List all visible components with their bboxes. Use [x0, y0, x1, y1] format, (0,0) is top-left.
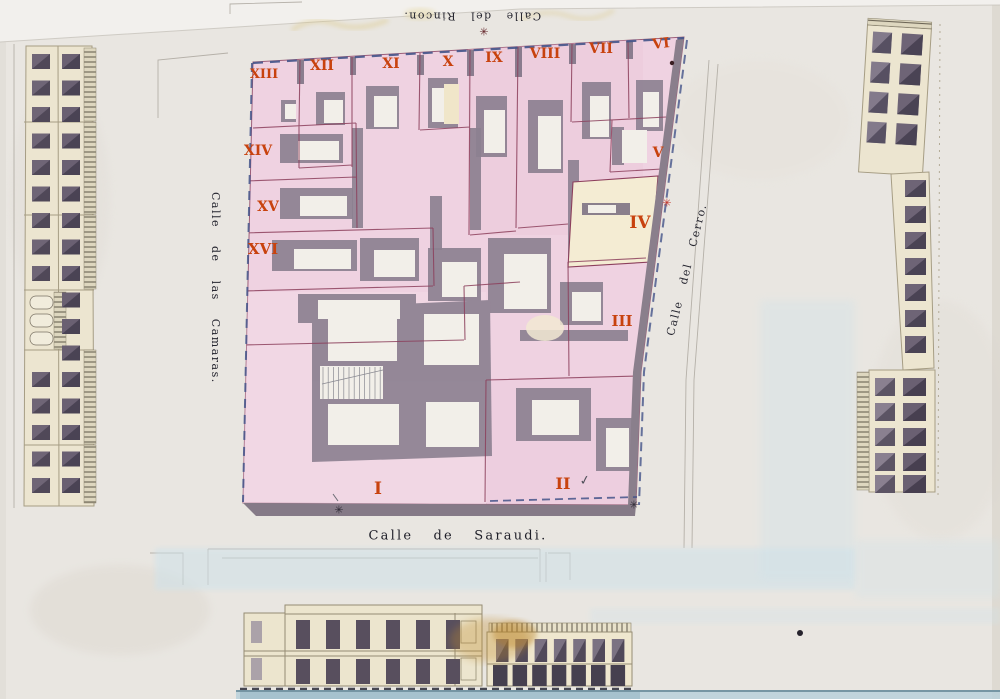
survey-star-bottom-right: ✳ [629, 500, 638, 511]
lot-iv-building-slot [588, 205, 616, 213]
left-elevation-arcade [30, 296, 53, 345]
border-band-bottom [243, 503, 636, 516]
lot-numeral-iv: IV [618, 214, 662, 233]
left-elevation [24, 46, 96, 506]
facade-door [571, 665, 586, 686]
street-wash-bottom [155, 548, 855, 590]
facade-a-parapet [285, 605, 482, 614]
city-block-plan [243, 37, 687, 516]
cream-court [444, 84, 459, 124]
lot-numeral-xvi: XVI [241, 241, 285, 258]
street-wash-facade-top [590, 608, 1000, 624]
cream-court [526, 315, 564, 341]
facade-window [386, 659, 400, 684]
lot-numeral-viii: VIII [523, 47, 567, 62]
lot-numeral-xii: XII [300, 59, 344, 74]
facade-door [591, 665, 606, 686]
lot-numeral-xiii: XIII [242, 68, 286, 82]
lot-numeral-v: V [636, 146, 680, 161]
street-label-camaras: Calle de las Camaras. [209, 192, 222, 384]
lot-numeral-iii: III [600, 313, 644, 330]
lot-numeral-i: I [356, 480, 400, 499]
facade-door [513, 665, 528, 686]
lot-numeral-xv: XV [246, 200, 290, 215]
facade-a-endbay-window [251, 658, 262, 680]
ink-dot [670, 61, 674, 65]
paper-blotch [670, 60, 850, 180]
bottom-water-dark [240, 692, 640, 699]
lot-numeral-ix: IX [472, 51, 516, 66]
street-label-rincon: Calle del Rincon. [403, 10, 541, 23]
ink-dot [797, 630, 803, 636]
survey-star-top: ✳ [479, 27, 488, 38]
arcade-arch [30, 314, 53, 327]
street-wash-right [760, 300, 855, 580]
lot-numeral-vii: VII [579, 42, 623, 57]
facade-door [493, 665, 508, 686]
facade-window [416, 620, 430, 649]
facade-door [552, 665, 567, 686]
facade-window [296, 659, 310, 684]
arcade-arch [30, 296, 53, 309]
lot-numeral-x: X [426, 55, 470, 70]
lot-numeral-xiv: XIV [236, 144, 280, 159]
photo-edge-left [0, 0, 6, 699]
right-elevation-upper [859, 18, 932, 176]
ink-stain [493, 620, 537, 648]
facade-window [296, 620, 310, 649]
facade-window [326, 620, 340, 649]
facade-window [356, 659, 370, 684]
facade-window [386, 620, 400, 649]
facade-window [326, 659, 340, 684]
lot-numeral-xi: XI [369, 57, 413, 72]
scanned-plan-sheet: Calle del Rincon. Calle de las Camaras. … [0, 0, 1000, 699]
plan-artwork [0, 0, 1000, 699]
survey-star-right: ✳ [662, 198, 671, 209]
arcade-arch [30, 332, 53, 345]
facade-door [532, 665, 547, 686]
facade-window [446, 659, 460, 684]
survey-star-bottom-left: ✳ [334, 505, 343, 516]
street-wash-corner [855, 540, 1000, 598]
facade-a-endbay-window [251, 621, 262, 643]
right-elevation-lower-cornice [857, 372, 869, 490]
pencil-checkmark: ✓ [578, 473, 591, 490]
facade-door [611, 665, 626, 686]
facade-window [356, 620, 370, 649]
facade-window [416, 659, 430, 684]
street-label-saraudi: Calle de Saraudi. [369, 529, 548, 544]
